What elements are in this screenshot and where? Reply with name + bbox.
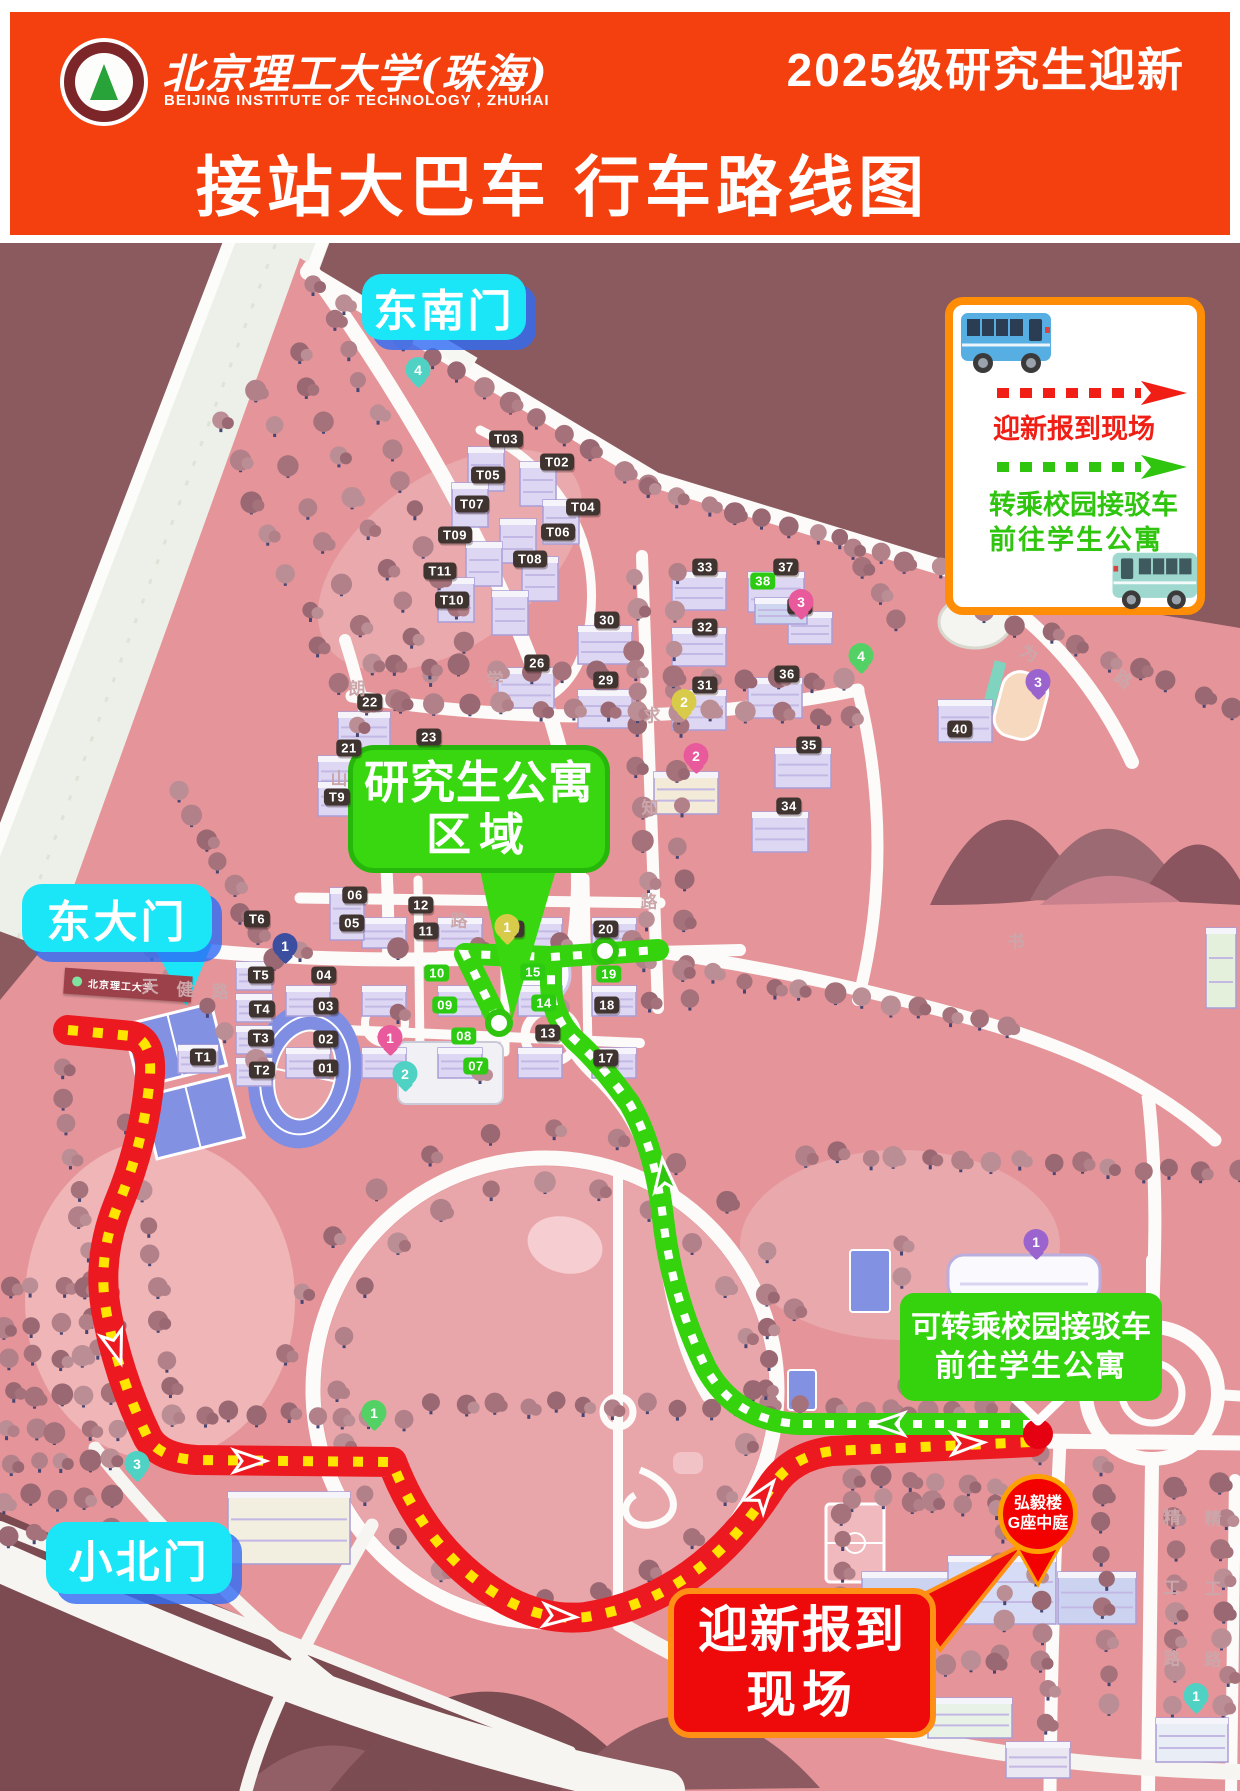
building-badge: 34: [776, 798, 801, 815]
building-badge: 15: [520, 964, 545, 981]
building-badge: 35: [796, 737, 821, 754]
university-name-en: BEIJING INSTITUTE OF TECHNOLOGY , ZHUHAI: [164, 92, 550, 109]
building-badge: 20: [593, 921, 618, 938]
red-dashed-arrow-icon: [993, 379, 1193, 407]
building-badge: T5: [248, 967, 274, 984]
building-badge: 01: [313, 1060, 338, 1077]
grad-apartment-area-callout: 研究生公寓 区域: [348, 745, 610, 873]
building-badge: 11: [414, 923, 439, 940]
building-badge: 05: [339, 915, 364, 932]
road-name-char: 朗: [349, 675, 366, 700]
building-badge: 38: [750, 573, 775, 590]
building-badge: T2: [249, 1062, 275, 1079]
building-badge: T1: [190, 1049, 216, 1066]
building-badge: 31: [692, 677, 717, 694]
road-name-char: 天: [142, 973, 159, 998]
building-badge: T4: [249, 1001, 275, 1018]
hongyi-pin-line2: G座中庭: [1008, 1514, 1068, 1534]
gate-label-1: 东南门: [362, 274, 526, 340]
road-name-char: 学: [487, 666, 504, 691]
event-title: 2025级研究生迎新: [787, 34, 1185, 100]
building-badge: T11: [423, 563, 456, 580]
report-line1: 迎新报到: [698, 1598, 906, 1663]
building-badge: 02: [313, 1031, 338, 1048]
building-badge: 21: [336, 740, 361, 757]
building-badge: T05: [471, 467, 505, 484]
blue-bus-icon: [959, 307, 1059, 377]
map-pin-icon: 2: [393, 1061, 418, 1086]
building-badge: 06: [342, 887, 367, 904]
building-badge: 36: [774, 666, 799, 683]
road-name-char: 路: [641, 888, 658, 913]
building-badge: 03: [313, 998, 338, 1015]
building-badge: T04: [566, 499, 600, 516]
registration-site-callout: 迎新报到 现场: [668, 1588, 936, 1738]
building-badge: 10: [424, 965, 449, 982]
building-badge: 19: [596, 966, 621, 983]
legend-red-route-label: 迎新报到现场: [993, 407, 1155, 446]
road-name-char: 路: [1164, 1645, 1181, 1670]
transfer-line2: 前往学生公寓: [935, 1347, 1127, 1386]
green-dashed-arrow-icon: [993, 453, 1193, 481]
legend-box: 迎新报到现场 转乘校园接驳车 前往学生公寓: [945, 297, 1205, 615]
gate-label-2: 东大门: [22, 884, 212, 952]
map-pin-icon: 3: [789, 589, 814, 614]
grad-callout-line1: 研究生公寓: [364, 757, 594, 809]
road-name-char: 工: [1164, 1574, 1181, 1599]
report-line2: 现场: [746, 1663, 858, 1728]
building-badge: 33: [692, 559, 717, 576]
building-badge: T3: [248, 1030, 274, 1047]
header-banner: 北京理工大学(珠海) BEIJING INSTITUTE OF TECHNOLO…: [10, 12, 1230, 235]
map-pin-icon: 1: [495, 914, 520, 939]
map-pin-icon: 2: [684, 743, 709, 768]
legend-green-route-label-1: 转乘校园接驳车: [989, 483, 1178, 522]
building-badge: 07: [463, 1058, 488, 1075]
road-name-char: 路: [1205, 1646, 1222, 1671]
building-badge: T6: [244, 911, 270, 928]
building-badge: 17: [593, 1050, 618, 1067]
building-badge: 29: [593, 672, 618, 689]
map-pin-icon: 3: [1026, 669, 1051, 694]
teal-shuttle-bus-icon: [1105, 547, 1199, 613]
building-badge: 26: [524, 655, 549, 672]
map-pin-icon: 4: [406, 357, 431, 382]
building-badge: 32: [692, 619, 717, 636]
building-badge: 04: [311, 967, 336, 984]
road-name-char: 工: [1205, 1575, 1222, 1600]
transfer-shuttle-callout: 可转乘校园接驳车 前往学生公寓: [900, 1293, 1162, 1401]
university-logo-icon: [60, 38, 148, 126]
building-badge: 40: [947, 721, 972, 738]
building-badge: T06: [541, 524, 575, 541]
building-badge: 14: [531, 995, 556, 1012]
map-pin-icon: 1: [378, 1025, 403, 1050]
road-name-char: 健: [177, 976, 194, 1001]
building-badge: 23: [416, 729, 441, 746]
building-badge: 13: [535, 1025, 560, 1042]
map-pin-icon: 1: [362, 1400, 387, 1425]
road-name-char: 路: [451, 907, 468, 932]
building-badge: T9: [324, 789, 350, 806]
hongyi-pin-line1: 弘毅楼: [1014, 1494, 1062, 1514]
gate-sign-logo-icon: [72, 976, 83, 987]
building-badge: T07: [455, 496, 489, 513]
building-badge: 12: [408, 897, 433, 914]
road-name-char: 精: [1164, 1504, 1181, 1529]
building-badge: 08: [451, 1028, 476, 1045]
building-badge: T10: [435, 592, 469, 609]
building-badge: T03: [489, 431, 523, 448]
building-badge: T09: [438, 527, 472, 544]
road-name-char: 书: [1008, 928, 1025, 953]
road-name-char: 知: [642, 794, 659, 819]
building-badge: 30: [594, 612, 619, 629]
building-badge: 18: [594, 997, 619, 1014]
poster-title: 接站大巴车 行车路线图: [10, 134, 1115, 230]
university-name-zh: 北京理工大学(珠海): [162, 40, 549, 100]
hongyi-building-pin: 弘毅楼 G座中庭: [998, 1474, 1078, 1554]
road-name-char: 山: [331, 765, 348, 790]
road-name-char: 求: [644, 702, 661, 727]
map-pin-icon: 4: [849, 643, 874, 668]
gate-label-3: 小北门: [46, 1522, 232, 1594]
map-pin-icon: 2: [672, 689, 697, 714]
road-name-char: 路: [212, 978, 229, 1003]
road-name-char: 精: [1205, 1505, 1222, 1530]
route-map-poster: 北京理工大学(珠海) BEIJING INSTITUTE OF TECHNOLO…: [0, 0, 1240, 1791]
building-badge: 37: [773, 559, 798, 576]
building-badge: T08: [513, 551, 547, 568]
map-pin-icon: 1: [1184, 1683, 1209, 1708]
building-badge: T02: [540, 454, 574, 471]
map-pin-icon: 1: [1024, 1229, 1049, 1254]
building-badge: 09: [432, 997, 457, 1014]
map-pin-icon: 3: [125, 1451, 150, 1476]
grad-callout-line2: 区域: [426, 809, 532, 861]
transfer-line1: 可转乘校园接驳车: [911, 1308, 1151, 1347]
map-pin-icon: 1: [273, 933, 298, 958]
